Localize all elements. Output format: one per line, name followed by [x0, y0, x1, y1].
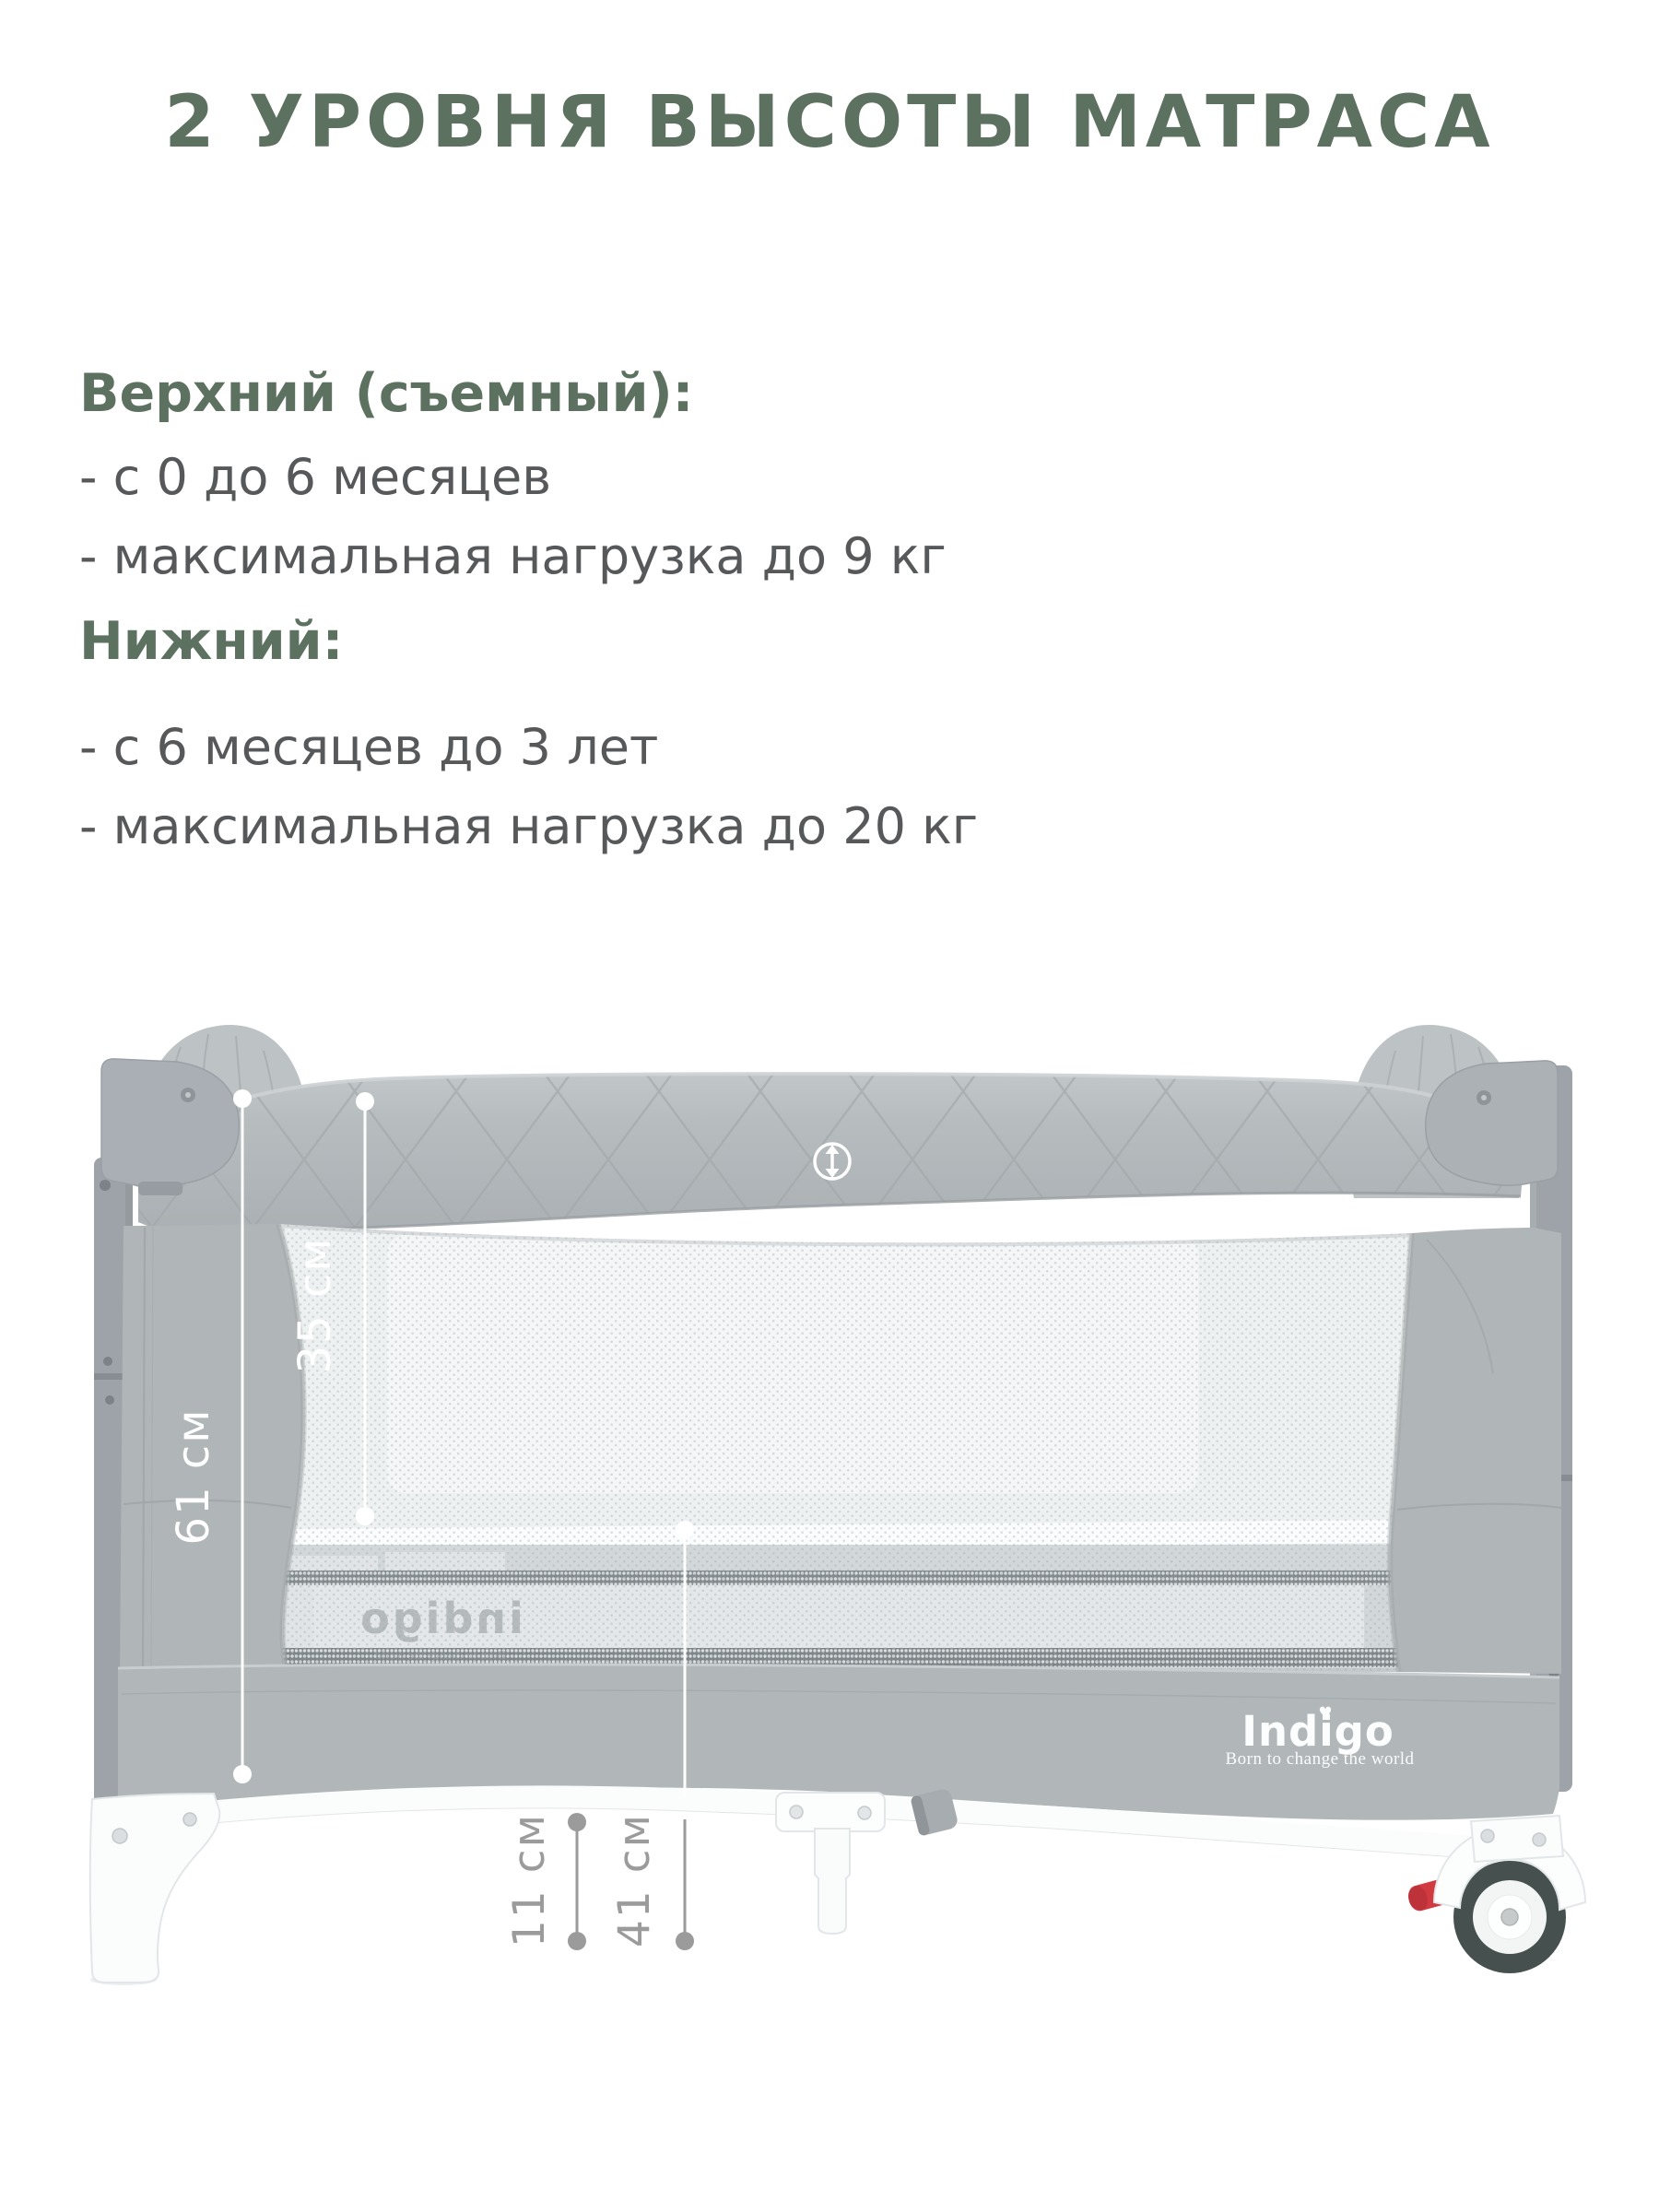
left-foot	[90, 1794, 220, 1985]
brand-tagline: Born to change the world	[1225, 1749, 1414, 1769]
mesh-texture	[267, 1198, 1429, 1677]
label-61: 61 см	[168, 1408, 219, 1546]
mesh-window: indigo Born to change the world	[267, 1198, 1429, 1677]
infographic-page: 2 УРОВНЯ ВЫСОТЫ МАТРАСА Верхний (съемный…	[0, 0, 1659, 2212]
center-joint	[776, 1793, 885, 1831]
label-11: 11 см	[504, 1813, 555, 1947]
center-leg	[815, 1829, 850, 1934]
brand-logo: Indigo ♥ Born to change the world	[1225, 1704, 1414, 1769]
top-rail	[138, 1074, 1523, 1230]
crib-illustration: indigo Born to change the world Indigo	[0, 0, 1659, 2212]
label-35: 35 см	[289, 1237, 341, 1374]
label-41: 41 см	[609, 1813, 660, 1947]
measurement-11: 11 см	[504, 1813, 586, 1950]
wheel-hub-cap	[1501, 1909, 1518, 1925]
heart-icon: ♥	[1318, 1704, 1332, 1723]
